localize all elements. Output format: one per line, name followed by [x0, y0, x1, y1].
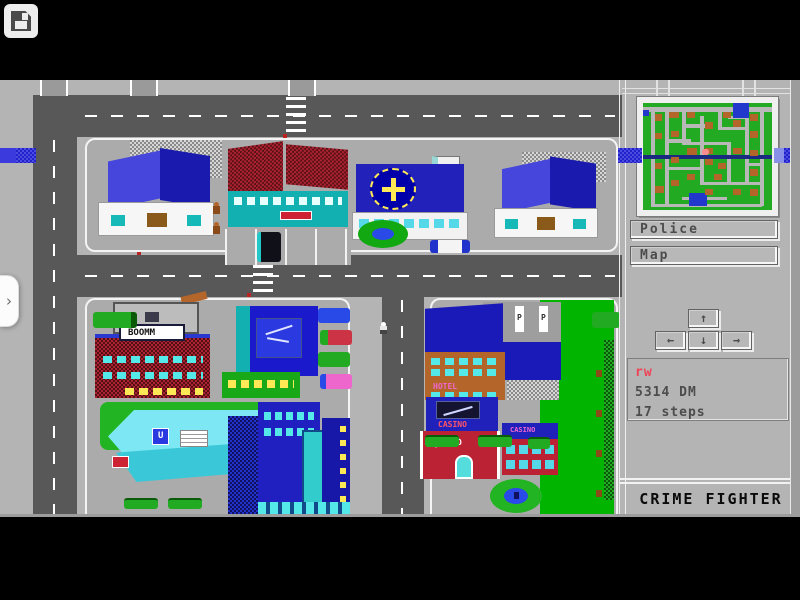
panel-divider — [619, 80, 626, 517]
roof-hatch — [145, 312, 159, 322]
road-stub-1 — [40, 80, 68, 96]
minimap-rect-b — [705, 159, 713, 165]
window-row — [506, 460, 554, 469]
minimap[interactable] — [637, 97, 778, 216]
minimap-rect-p — [702, 149, 708, 155]
base — [222, 372, 300, 398]
car-parked — [318, 308, 350, 323]
minimap-rect-r — [682, 142, 727, 145]
minimap-rect-b — [714, 174, 722, 180]
lane-line — [53, 140, 55, 515]
shop-window — [573, 219, 586, 229]
roof — [108, 150, 160, 209]
minimap-rect-b — [705, 122, 713, 128]
minimap-rect-b — [655, 114, 663, 121]
car-parked — [318, 352, 350, 367]
shop-door — [147, 213, 167, 227]
minimap-rect-r — [718, 107, 722, 128]
helipad — [370, 168, 416, 210]
minimap-rect-b — [687, 174, 695, 180]
shop-window — [505, 219, 518, 229]
app-root: › — [0, 0, 800, 600]
car-parked — [320, 330, 352, 345]
building-store — [228, 145, 350, 260]
roof — [286, 144, 348, 189]
road-south — [382, 297, 424, 517]
casino-roof: CASINO — [426, 397, 498, 431]
building-tower — [228, 402, 350, 517]
casino-annex-text: CASINO — [510, 426, 535, 434]
window-col — [340, 426, 346, 506]
status-money: 5314 DM — [635, 383, 788, 403]
minimap-rect-b — [705, 189, 713, 195]
panel-bottom-divider — [619, 478, 800, 484]
minimap-rect-b — [671, 157, 679, 163]
bench — [478, 435, 512, 447]
shop-window — [187, 215, 201, 226]
police-car — [430, 240, 470, 253]
window-row — [103, 356, 203, 363]
crosswalk — [286, 97, 306, 135]
minimap-rect-b — [669, 112, 679, 118]
chevron-right-icon: › — [6, 292, 12, 310]
fountain-jet — [514, 492, 519, 499]
minimap-content — [643, 103, 772, 210]
store-sign — [280, 211, 312, 220]
p-post-text: P — [517, 313, 522, 322]
building-hospital — [352, 158, 472, 258]
floppy-icon — [11, 11, 31, 31]
trash-can — [596, 410, 602, 417]
minimap-rect-b — [733, 148, 742, 154]
fountain — [490, 479, 542, 513]
minimap-rect-b — [750, 131, 758, 138]
park-bushes — [604, 340, 614, 500]
window-row — [431, 358, 499, 365]
side-panel: Police Map ↑ ← ↓ → rw 5314 DM 17 steps C… — [622, 80, 800, 517]
game-title: CRIME FIGHTER — [622, 490, 800, 508]
car-green — [93, 312, 137, 328]
lane-line — [401, 300, 403, 517]
pedestrian-body — [380, 326, 387, 334]
dpad-right-button[interactable]: → — [721, 331, 752, 350]
roof — [502, 159, 550, 213]
map-button[interactable]: Map — [630, 246, 778, 265]
minimap-rect-r — [745, 163, 763, 166]
roof — [503, 342, 561, 380]
window-row — [228, 380, 294, 388]
save-button[interactable] — [4, 4, 38, 38]
building-casino: CASINO CASINO CASINO — [420, 395, 565, 517]
minimap-rect-b — [723, 112, 731, 118]
u-sign-text: U — [158, 431, 163, 441]
hotel-sign-text: HOTEL — [433, 382, 457, 391]
dpad-down-button[interactable]: ↓ — [688, 331, 719, 350]
minimap-rect-r — [665, 169, 669, 205]
minimap-rect-b — [671, 131, 679, 137]
minimap-rect-b — [750, 189, 758, 196]
minimap-rect-b — [733, 120, 741, 126]
sidebar-expand-handle[interactable]: › — [0, 275, 19, 327]
entrance — [455, 455, 473, 479]
trash-can — [596, 450, 602, 457]
building-office — [222, 300, 352, 400]
scribble — [265, 325, 292, 336]
building-shop-east — [488, 152, 613, 252]
fountain-water — [372, 228, 394, 240]
body — [95, 334, 210, 398]
city-map[interactable]: BOOMM — [0, 80, 622, 517]
window-row — [103, 372, 203, 379]
minimap-rect-r — [745, 107, 749, 184]
building-shop-west — [90, 138, 230, 253]
minimap-rect-b — [671, 180, 679, 186]
window-row — [431, 369, 499, 376]
dpad-up-button[interactable]: ↑ — [688, 309, 719, 328]
minimap-rect-b — [750, 150, 758, 156]
status-steps: 17 steps — [635, 403, 788, 423]
window-row — [234, 197, 342, 205]
window-row — [125, 388, 203, 395]
white-sign — [180, 430, 208, 447]
game-screen: BOOMM — [0, 80, 800, 517]
casino-roof-text: CASINO — [438, 420, 467, 429]
minimap-rect-b — [687, 112, 695, 118]
police-button[interactable]: Police — [630, 220, 778, 239]
tower — [236, 306, 318, 376]
boomm-sign-text: BOOMM — [128, 328, 155, 338]
road-stub-3 — [288, 80, 316, 96]
tower-left — [228, 416, 262, 514]
base-strip — [258, 502, 350, 514]
scribble — [443, 406, 472, 416]
hotel-body: HOTEL — [425, 352, 505, 400]
minimap-rect-u — [643, 110, 649, 115]
car-parked — [257, 232, 281, 262]
wall — [228, 191, 348, 227]
lane-line — [85, 115, 615, 117]
motorway-stripe-mid — [618, 148, 642, 163]
red-door — [112, 456, 129, 468]
billboard — [256, 318, 302, 358]
scribble — [267, 337, 289, 343]
pedestrian — [213, 202, 221, 215]
helipad-cross — [382, 187, 405, 192]
u-sign: U — [152, 428, 169, 445]
bench — [168, 498, 202, 509]
facade — [98, 202, 214, 236]
screen-edge-bottom — [0, 514, 800, 517]
bench — [528, 437, 550, 449]
car-green — [592, 312, 620, 328]
motorway-stripe-left — [0, 148, 36, 163]
bench — [425, 435, 459, 447]
trash-can — [596, 490, 602, 497]
minimap-rect-r — [727, 142, 731, 185]
traffic-light — [247, 293, 251, 297]
fountain — [358, 220, 408, 248]
pedestrian — [380, 322, 388, 336]
trash-can — [596, 370, 602, 377]
minimap-rect-r — [700, 167, 704, 184]
billboard — [436, 401, 480, 419]
minimap-rect-u — [733, 103, 748, 118]
parking-lot — [225, 229, 351, 265]
pedestrian — [213, 222, 221, 235]
window-row — [264, 412, 314, 420]
road-stub-2 — [130, 80, 158, 96]
minimap-rect-b — [750, 114, 758, 121]
screen-edge-right — [790, 80, 800, 517]
facade — [494, 208, 598, 238]
floppy-shutter — [22, 13, 28, 20]
roof — [550, 156, 596, 211]
shop-door — [537, 217, 555, 230]
status-mode: rw — [635, 363, 788, 383]
minimap-rect-b — [655, 163, 663, 169]
p-post-text: P — [541, 313, 546, 322]
p-post: P — [539, 306, 548, 332]
minimap-rect-r — [643, 107, 772, 111]
building-hotel: P P P HOTEL — [425, 300, 565, 400]
bench — [124, 498, 158, 509]
minimap-rect-r — [665, 167, 704, 170]
floppy-label — [15, 21, 27, 29]
panel-road-line — [622, 88, 800, 94]
road-left — [33, 95, 77, 517]
p-post: P — [515, 306, 524, 332]
dpad-left-button[interactable]: ← — [655, 331, 686, 350]
tower-right — [322, 418, 350, 514]
minimap-rect-b — [655, 186, 664, 192]
status-box: rw 5314 DM 17 steps — [627, 358, 789, 421]
minimap-rect-b — [733, 189, 741, 195]
pedestrian-body — [213, 206, 220, 214]
minimap-rect-b — [750, 169, 758, 175]
minimap-rect-b — [718, 163, 726, 169]
minimap-rect-b — [687, 148, 697, 155]
roof — [160, 148, 210, 208]
car-parked — [320, 374, 352, 389]
minimap-rect-b — [655, 133, 663, 139]
shop-window — [111, 215, 125, 226]
lane-line — [85, 275, 615, 277]
pedestrian-body — [213, 226, 220, 234]
minimap-rect-r — [727, 182, 763, 185]
